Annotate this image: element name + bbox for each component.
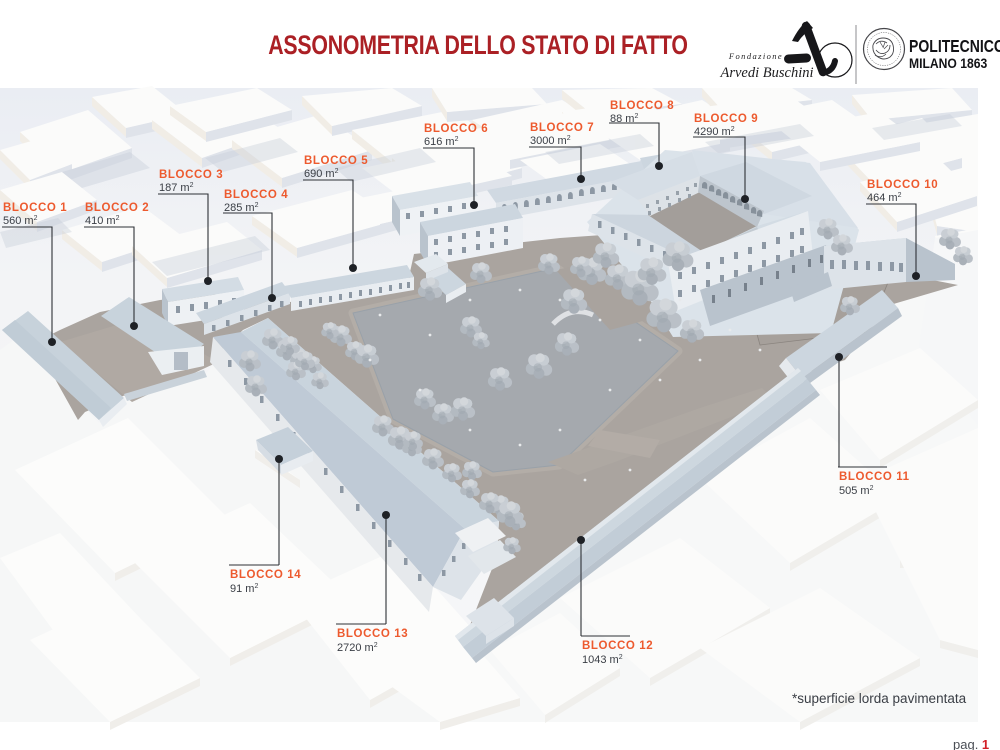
- svg-text:BLOCCO 6: BLOCCO 6: [424, 123, 488, 135]
- svg-text:4290 m2: 4290 m2: [694, 126, 735, 138]
- svg-text:690 m2: 690 m2: [304, 168, 339, 180]
- svg-text:pag. 1: pag. 1: [953, 737, 989, 750]
- svg-text:3000 m2: 3000 m2: [530, 135, 571, 147]
- svg-text:BLOCCO 1: BLOCCO 1: [3, 202, 67, 214]
- svg-text:ASSONOMETRIA DELLO STATO DI FA: ASSONOMETRIA DELLO STATO DI FATTO: [268, 31, 688, 61]
- svg-text:BLOCCO 13: BLOCCO 13: [337, 628, 408, 640]
- svg-text:BLOCCO 7: BLOCCO 7: [530, 122, 594, 134]
- svg-text:Arvedi Buschini: Arvedi Buschini: [719, 65, 813, 81]
- svg-text:1043 m2: 1043 m2: [582, 654, 623, 666]
- svg-text:BLOCCO 3: BLOCCO 3: [159, 169, 223, 181]
- svg-text:464 m2: 464 m2: [867, 192, 902, 204]
- svg-text:616 m2: 616 m2: [424, 136, 459, 148]
- svg-text:91 m2: 91 m2: [230, 583, 258, 595]
- svg-text:BLOCCO 14: BLOCCO 14: [230, 569, 301, 581]
- svg-text:BLOCCO 8: BLOCCO 8: [610, 100, 674, 112]
- svg-text:*superficie lorda pavimentata: *superficie lorda pavimentata: [792, 691, 967, 706]
- svg-text:285 m2: 285 m2: [224, 202, 259, 214]
- svg-text:POLITECNICO: POLITECNICO: [909, 36, 1000, 56]
- svg-text:560 m2: 560 m2: [3, 215, 38, 227]
- svg-text:BLOCCO 12: BLOCCO 12: [582, 640, 653, 652]
- svg-text:187 m2: 187 m2: [159, 182, 194, 194]
- svg-text:BLOCCO 2: BLOCCO 2: [85, 202, 149, 214]
- svg-text:BLOCCO 11: BLOCCO 11: [839, 471, 910, 483]
- svg-text:2720 m2: 2720 m2: [337, 642, 378, 654]
- svg-text:BLOCCO 10: BLOCCO 10: [867, 179, 938, 191]
- svg-text:BLOCCO 5: BLOCCO 5: [304, 155, 368, 167]
- svg-text:MILANO 1863: MILANO 1863: [909, 55, 987, 71]
- svg-text:410 m2: 410 m2: [85, 215, 120, 227]
- svg-text:BLOCCO 4: BLOCCO 4: [224, 189, 288, 201]
- svg-text:BLOCCO 9: BLOCCO 9: [694, 113, 758, 125]
- svg-text:Fondazione: Fondazione: [728, 51, 783, 61]
- svg-text:505 m2: 505 m2: [839, 485, 874, 497]
